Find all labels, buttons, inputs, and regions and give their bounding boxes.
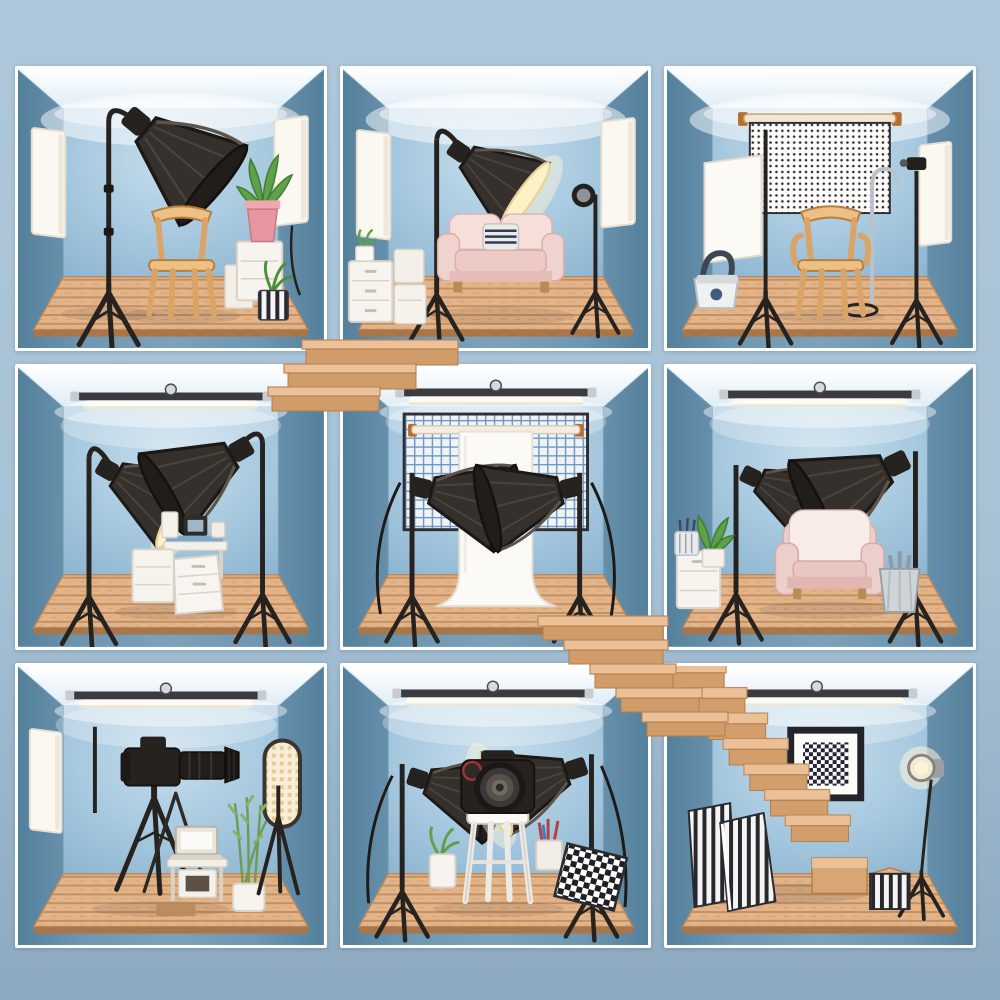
oval-led-panel bbox=[264, 740, 299, 826]
backdrop-rod bbox=[744, 114, 896, 123]
ceiling-tube-light bbox=[55, 683, 276, 748]
striped-boards bbox=[689, 803, 776, 911]
wall-reflector-panel-left bbox=[356, 130, 390, 240]
ceiling-tube-light bbox=[382, 681, 603, 746]
wall-reflector-panel-left bbox=[32, 128, 66, 238]
wall-reflector-panel-right bbox=[920, 142, 952, 246]
room-bottom-right bbox=[664, 663, 976, 948]
room-top-right bbox=[664, 66, 976, 351]
room-middle-left bbox=[15, 364, 327, 649]
room-middle-right bbox=[664, 364, 976, 649]
floor-mat bbox=[156, 904, 195, 916]
dslr-camera bbox=[461, 750, 534, 813]
room-center bbox=[340, 364, 652, 649]
striped-pillow bbox=[483, 224, 518, 250]
illustration-canvas bbox=[0, 0, 1000, 1000]
ceiling-tube-light bbox=[710, 383, 931, 448]
studio-grid bbox=[0, 0, 1000, 1000]
pink-armchair bbox=[776, 510, 884, 599]
pink-loveseat bbox=[437, 214, 563, 292]
wall-reflector-panel-right bbox=[601, 118, 635, 228]
white-drawer-unit bbox=[349, 261, 392, 322]
canister-stack bbox=[394, 249, 426, 323]
striped-cube bbox=[870, 868, 909, 909]
room-top-center bbox=[340, 66, 652, 351]
room-bottom-center bbox=[340, 663, 652, 948]
room-bottom-left bbox=[15, 663, 327, 948]
wall-reflector-panel-left bbox=[30, 728, 62, 832]
pen-cup bbox=[536, 819, 562, 870]
room-top-left bbox=[15, 66, 327, 351]
